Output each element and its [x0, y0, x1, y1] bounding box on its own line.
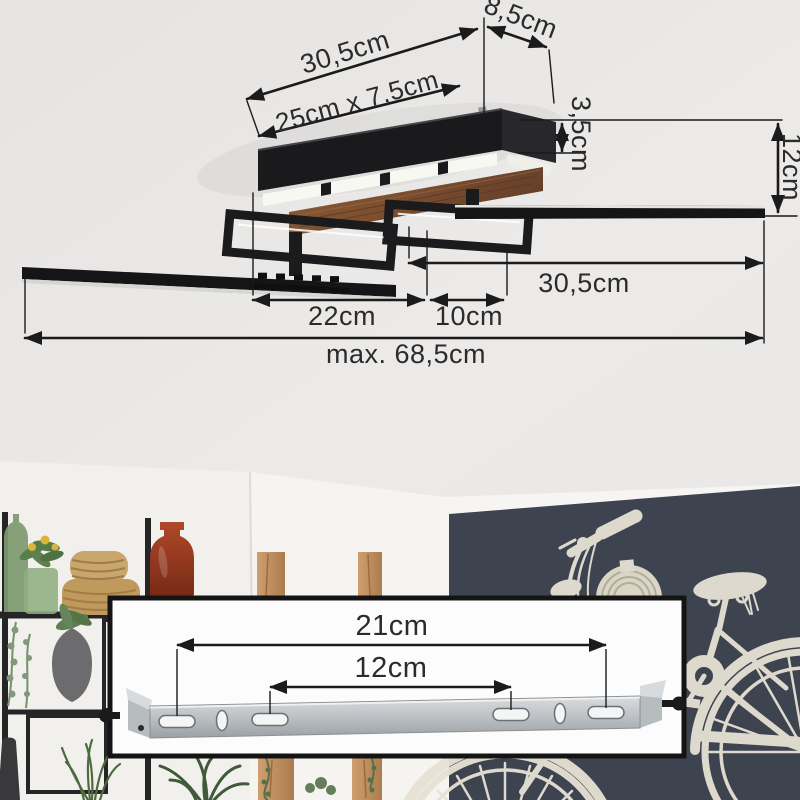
right-arm-blade [455, 205, 765, 219]
wood-post-right-lower [352, 758, 382, 800]
dim-canopy-height-label: 3,5cm [566, 96, 596, 172]
dim-right-arm-label: 30,5cm [538, 268, 630, 298]
led-mullion [321, 182, 331, 196]
dim-arm-gap-label: 10cm [435, 301, 503, 331]
wood-post-left-lower [258, 758, 294, 800]
dim-outer-hole-spacing-label: 21cm [356, 610, 429, 642]
bracket-inset: 21cm 12cm [99, 598, 686, 756]
dim-overall-width-label: max. 68,5cm [326, 339, 486, 369]
wood-post-left [257, 552, 285, 598]
scene-svg: 30,5cm 8,5cm 25cm x 7,5cm 3,5cm 12cm 30,… [0, 0, 800, 800]
dim-ceiling-clearance-label: 12cm [777, 133, 800, 201]
product-photo: 30,5cm 8,5cm 25cm x 7,5cm 3,5cm 12cm 30,… [0, 0, 800, 800]
led-mullion [380, 172, 390, 186]
led-mullion [438, 161, 448, 175]
pivot-post-left [289, 232, 302, 276]
dim-inner-hole-spacing-label: 12cm [355, 652, 428, 684]
dim-left-arm-label: 22cm [308, 301, 376, 331]
